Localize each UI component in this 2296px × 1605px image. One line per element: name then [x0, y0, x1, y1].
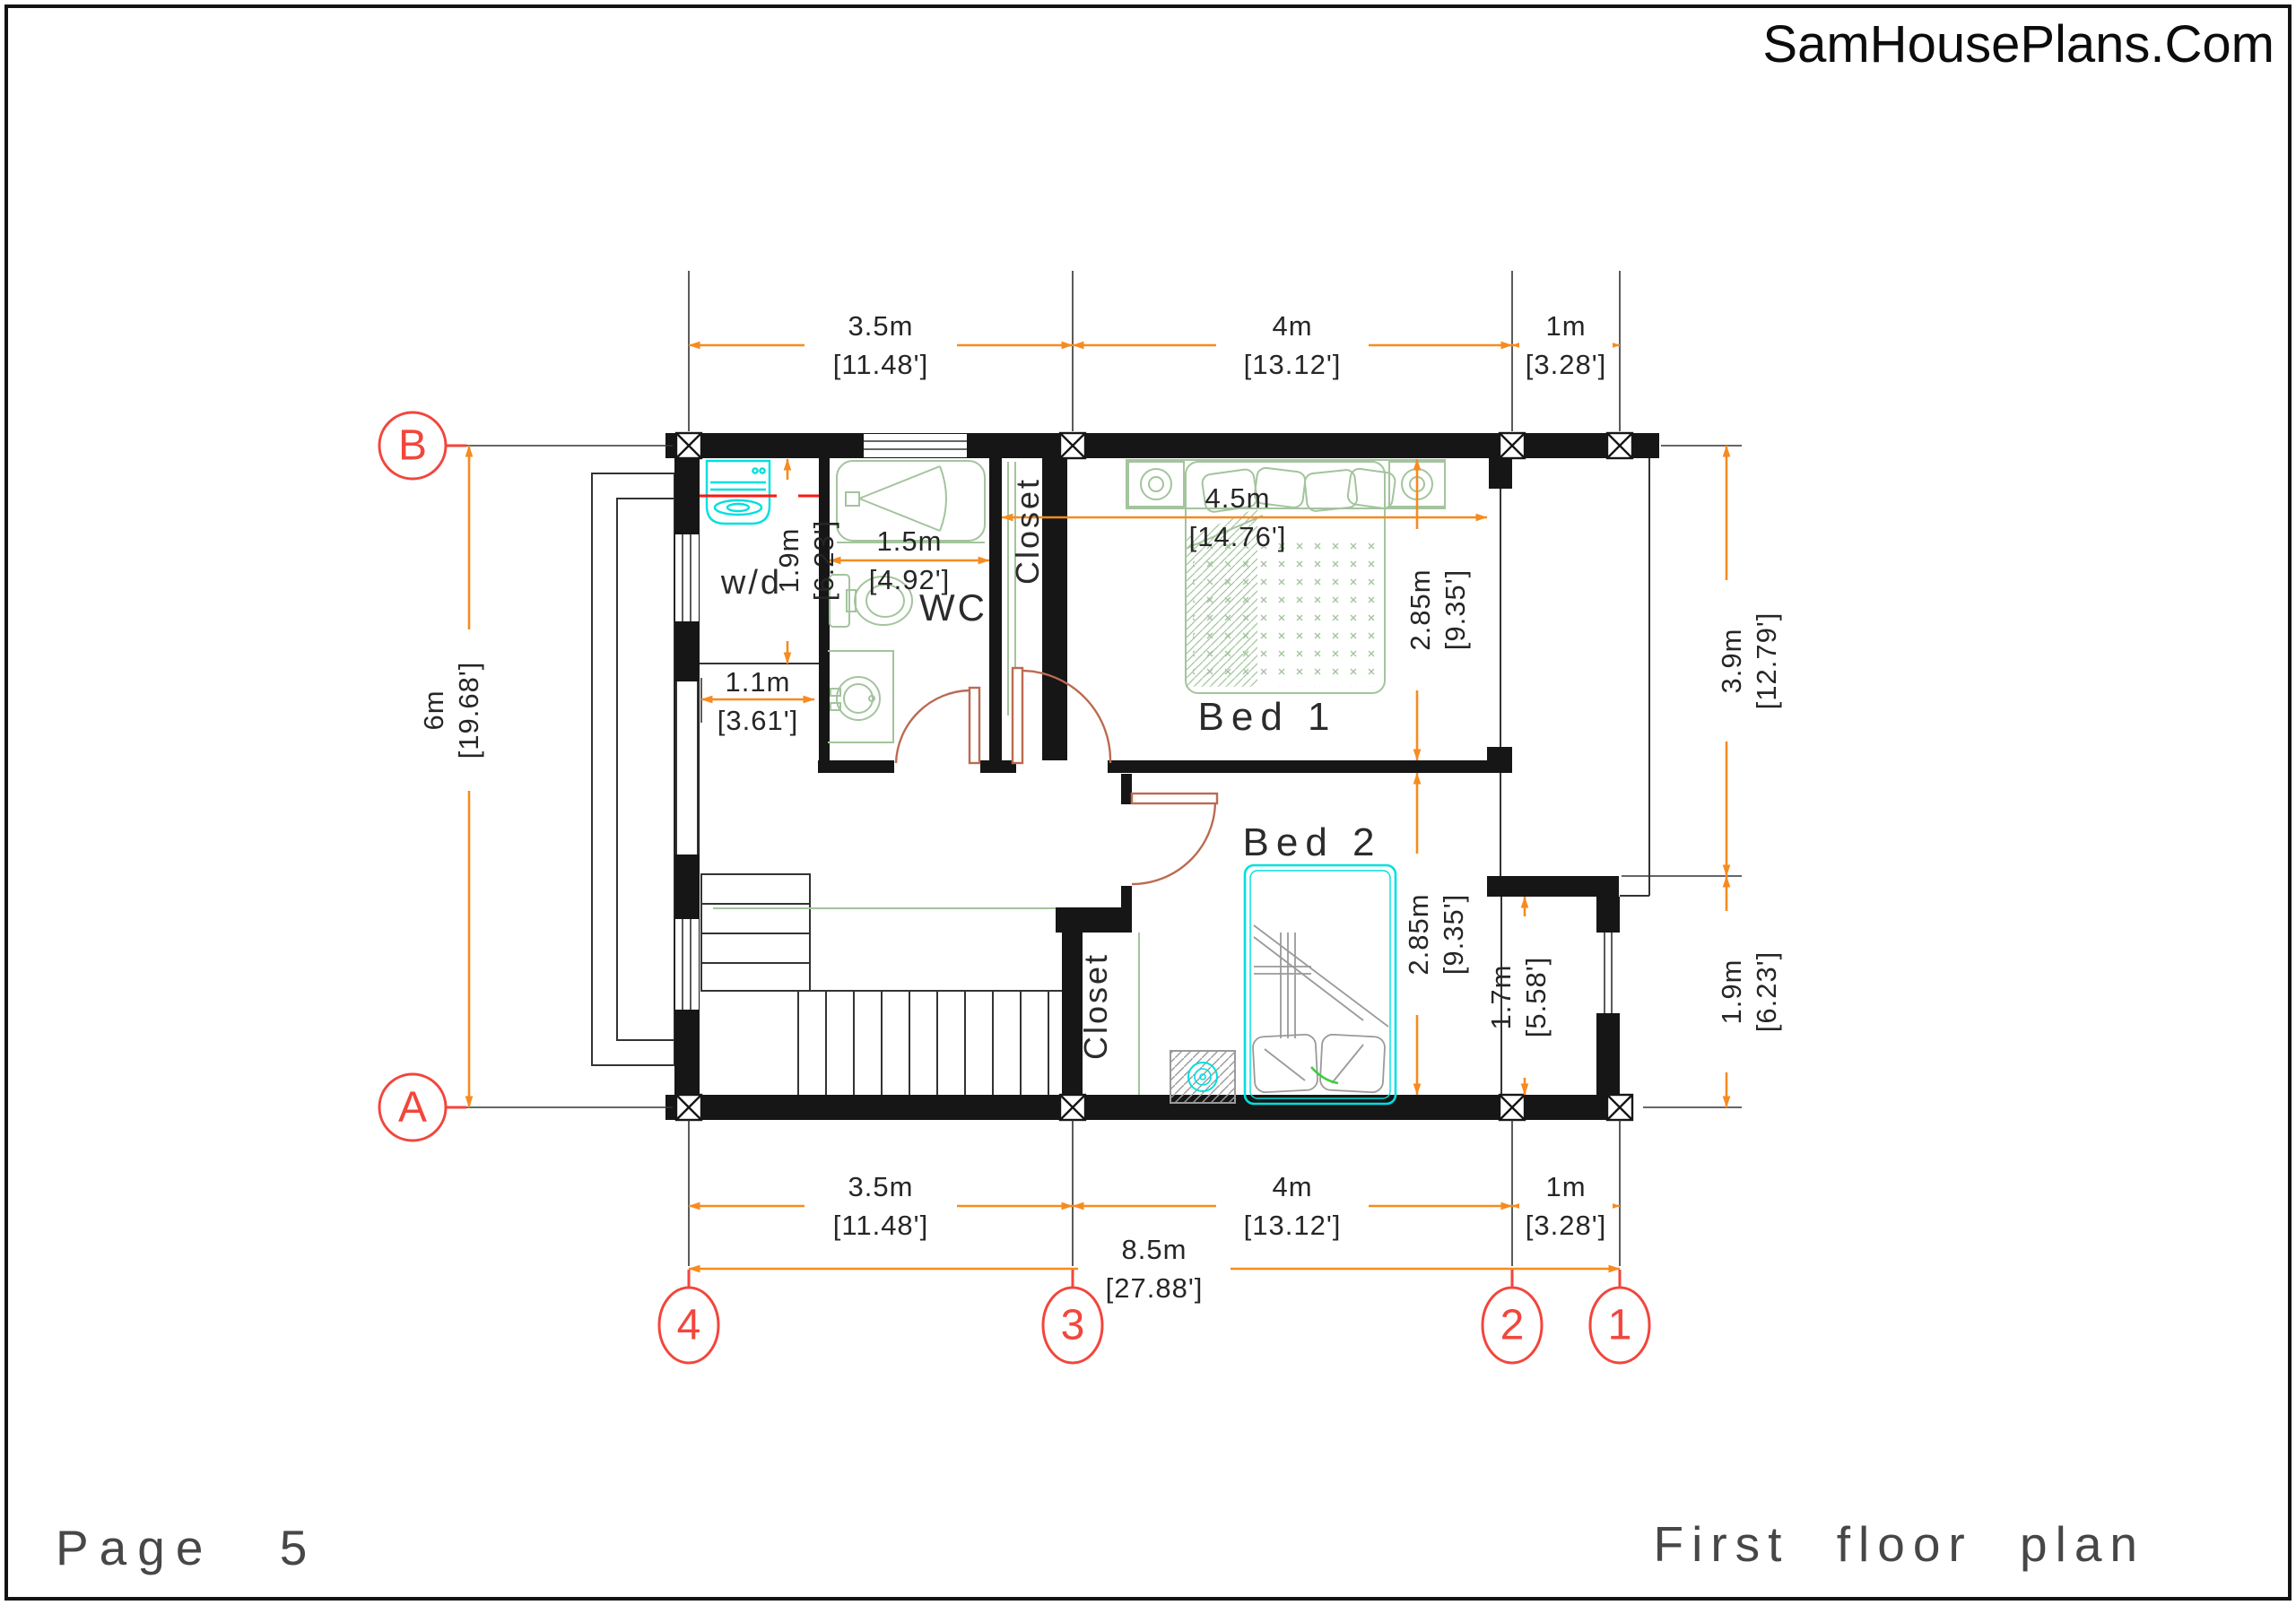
- dim-wd-1-1m: 1.1m [3.61']: [717, 668, 798, 734]
- dim-wc-1-5m: 1.5m [4.92']: [869, 527, 950, 594]
- dim-bottom-3-5m: 3.5m [11.48']: [833, 1173, 928, 1239]
- room-label-wd: w/d: [721, 566, 782, 600]
- room-label-wc: WC: [919, 589, 987, 627]
- site-brand: SamHousePlans.Com: [1762, 14, 2274, 74]
- dim-total-8-5m: 8.5m [27.88']: [1106, 1236, 1204, 1302]
- dim-bed1-2-85m: 2.85m [9.35']: [1406, 568, 1469, 650]
- grid-bubble-2: 2: [1500, 1301, 1525, 1350]
- grid-bubble-4: 4: [677, 1301, 701, 1350]
- drawing-title: First floor plan: [1654, 1515, 2145, 1573]
- grid-bubble-1: 1: [1608, 1301, 1632, 1350]
- stairs: [701, 874, 1062, 1095]
- dim-right-3-9m: 3.9m [12.79']: [1718, 612, 1780, 710]
- dim-bed1-4-5m: 4.5m [14.76']: [1189, 484, 1287, 551]
- dim-bottom-1m: 1m [3.28']: [1526, 1173, 1606, 1239]
- sink-icon: [828, 651, 893, 742]
- dim-text-gaps: [458, 334, 1737, 1280]
- grid-bubble-A: A: [398, 1083, 427, 1132]
- dim-top-4m: 4m [13.12']: [1244, 312, 1342, 378]
- washer-dryer-icon: [707, 461, 770, 524]
- dim-right-room-1-7m: 1.7m [5.58']: [1487, 957, 1550, 1037]
- dim-top-1m: 1m [3.28']: [1526, 312, 1606, 378]
- dim-bed2-2-85m: 2.85m [9.35']: [1405, 893, 1467, 975]
- dim-left-6m: 6m [19.68']: [420, 662, 483, 759]
- dim-right-1-9m: 1.9m [6.23']: [1718, 951, 1780, 1032]
- dim-bottom-4m: 4m [13.12']: [1244, 1173, 1342, 1239]
- dim-top-3-5m: 3.5m [11.48']: [833, 312, 928, 378]
- grid-bubble-3: 3: [1061, 1301, 1085, 1350]
- wc-door: [896, 688, 979, 763]
- deck-outline: [592, 473, 674, 1065]
- bed2-icon: [1245, 865, 1396, 1104]
- dimension-lines: [469, 345, 1726, 1269]
- bed2-nightstand-icon: [1170, 1051, 1235, 1103]
- page-number-label: Page 5: [56, 1519, 317, 1576]
- room-label-bed2: Bed 2: [1243, 823, 1382, 863]
- room-label-closet-top: Closet: [1012, 477, 1044, 585]
- floor-plan-drawing: [0, 0, 2296, 1605]
- room-label-bed1: Bed 1: [1198, 698, 1337, 737]
- bed2-door: [1132, 794, 1217, 884]
- floor-plan-sheet: SamHousePlans.Com 3.5m [11.48'] 4m [13.1…: [0, 0, 2296, 1605]
- dim-wd-1-9m: 1.9m [6.23']: [775, 520, 838, 601]
- room-label-closet-bottom: Closet: [1080, 952, 1112, 1060]
- grid-bubble-B: B: [398, 421, 427, 471]
